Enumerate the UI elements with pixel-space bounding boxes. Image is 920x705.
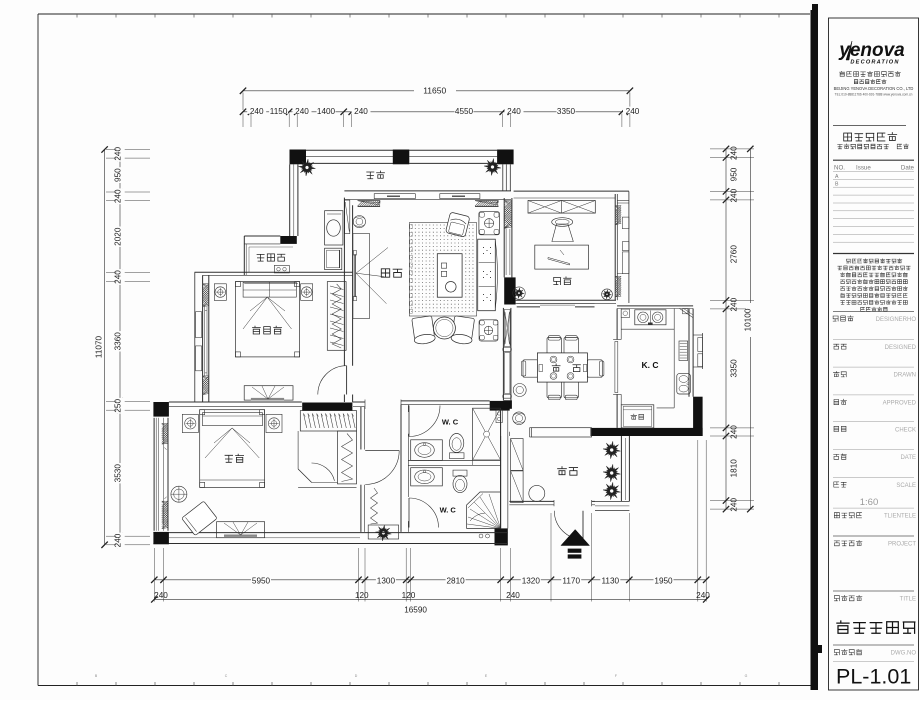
svg-text:16590: 16590 xyxy=(404,606,427,615)
svg-text:4550: 4550 xyxy=(455,107,474,116)
svg-text:1:60: 1:60 xyxy=(860,497,879,508)
svg-text:1810: 1810 xyxy=(730,459,739,478)
svg-text:APPROVED: APPROVED xyxy=(883,401,917,407)
svg-text:240: 240 xyxy=(506,591,520,600)
svg-text:DESIGNERHO: DESIGNERHO xyxy=(876,317,917,323)
svg-text:240: 240 xyxy=(730,498,739,512)
svg-text:240: 240 xyxy=(730,146,739,160)
svg-text:CHECK: CHECK xyxy=(895,428,916,434)
svg-text:240: 240 xyxy=(507,107,521,116)
svg-text:1170: 1170 xyxy=(562,576,580,585)
svg-text:F: F xyxy=(615,674,617,678)
svg-text:1320: 1320 xyxy=(522,576,541,585)
svg-text:240: 240 xyxy=(295,107,309,116)
svg-text:K. C: K. C xyxy=(642,360,659,370)
svg-text:3530: 3530 xyxy=(113,464,122,483)
svg-text:120: 120 xyxy=(355,591,369,600)
svg-text:TLIENTELE: TLIENTELE xyxy=(884,514,916,520)
svg-text:3350: 3350 xyxy=(730,359,739,378)
svg-text:240: 240 xyxy=(730,188,739,202)
svg-text:W. C: W. C xyxy=(440,506,457,515)
svg-text:1150: 1150 xyxy=(270,107,288,116)
svg-text:240: 240 xyxy=(113,189,122,203)
svg-text:1130: 1130 xyxy=(601,576,619,585)
svg-text:PL-1.01: PL-1.01 xyxy=(836,665,911,689)
svg-text:TEL:010-88811766 400-691-7888: TEL:010-88811766 400-691-7888 www.yenova… xyxy=(835,93,913,97)
svg-text:240: 240 xyxy=(626,107,640,116)
svg-text:250: 250 xyxy=(113,399,122,413)
svg-text:240: 240 xyxy=(113,533,122,547)
svg-text:240: 240 xyxy=(354,107,368,116)
svg-text:5950: 5950 xyxy=(252,576,271,585)
svg-text:SCALE: SCALE xyxy=(896,483,916,489)
svg-text:2020: 2020 xyxy=(113,227,122,246)
svg-text:DWG.NO: DWG.NO xyxy=(891,651,917,657)
svg-text:TITLE: TITLE xyxy=(900,597,916,603)
svg-text:240: 240 xyxy=(730,425,739,439)
svg-text:2810: 2810 xyxy=(446,576,465,585)
svg-text:B: B xyxy=(835,182,839,188)
svg-text:950: 950 xyxy=(730,167,739,181)
svg-text:W. C: W. C xyxy=(442,418,459,427)
svg-text:240: 240 xyxy=(250,107,264,116)
svg-text:240: 240 xyxy=(696,591,710,600)
svg-text:240: 240 xyxy=(154,591,168,600)
svg-text:10100: 10100 xyxy=(743,308,752,331)
svg-text:1300: 1300 xyxy=(377,576,396,585)
svg-text:240: 240 xyxy=(730,297,739,311)
svg-text:1400: 1400 xyxy=(317,107,336,116)
svg-text:DECORATION: DECORATION xyxy=(850,60,899,66)
svg-text:3350: 3350 xyxy=(557,107,576,116)
svg-text:120: 120 xyxy=(402,591,416,600)
svg-text:240: 240 xyxy=(113,147,122,161)
svg-text:11070: 11070 xyxy=(95,335,104,358)
svg-text:Issue: Issue xyxy=(856,165,871,172)
svg-text:240: 240 xyxy=(113,270,122,284)
svg-text:PROJECT: PROJECT xyxy=(888,542,916,548)
svg-text:1950: 1950 xyxy=(654,576,673,585)
svg-text:3360: 3360 xyxy=(113,332,122,351)
svg-text:NO.: NO. xyxy=(834,165,845,172)
svg-text:G: G xyxy=(745,674,748,678)
svg-text:11650: 11650 xyxy=(423,85,446,95)
svg-text:Date: Date xyxy=(901,165,915,172)
svg-text:2760: 2760 xyxy=(730,245,739,264)
svg-text:A: A xyxy=(835,174,839,180)
svg-text:DESIGNED: DESIGNED xyxy=(885,345,917,351)
svg-text:DATE: DATE xyxy=(900,455,916,461)
svg-text:BEIJING YENOVA DECORATION CO.,: BEIJING YENOVA DECORATION CO., LTD xyxy=(834,86,914,91)
svg-text:950: 950 xyxy=(113,168,122,182)
svg-text:DRAWN: DRAWN xyxy=(894,373,916,379)
